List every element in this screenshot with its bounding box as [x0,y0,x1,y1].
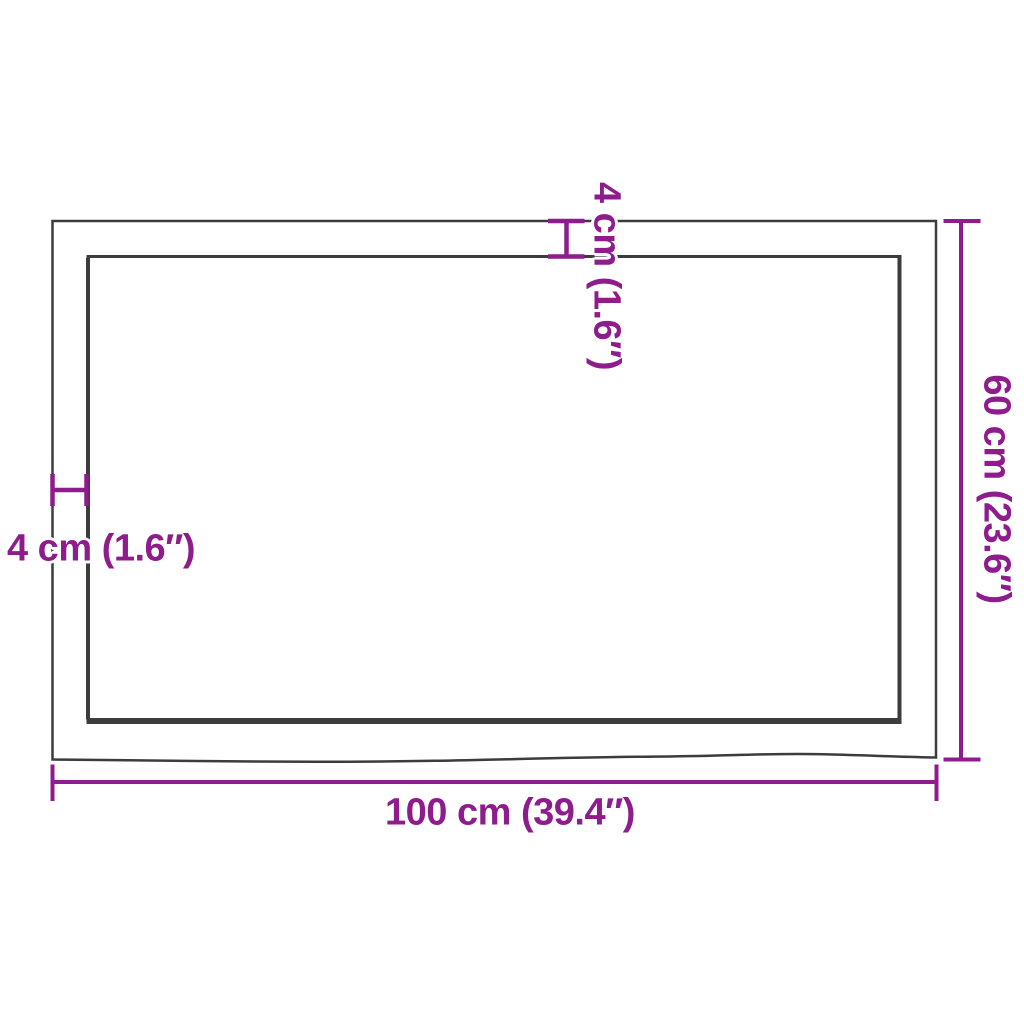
panel-drawing [0,0,1024,1024]
panel-inner-outline [88,257,900,722]
product-dimension-diagram: 100 cm (39.4″) 60 cm (23.6″) 4 cm (1.6″)… [0,0,1024,1024]
thickness-side-label: 4 cm (1.6″) [7,528,195,571]
thickness-top-label: 4 cm (1.6″) [585,182,628,370]
thickness-top-bracket [548,221,585,257]
width-dimension-label: 100 cm (39.4″) [385,792,635,835]
thickness-left-bracket [53,474,87,506]
panel-outer-outline [53,221,937,762]
depth-dimension-label: 60 cm (23.6″) [975,374,1018,603]
